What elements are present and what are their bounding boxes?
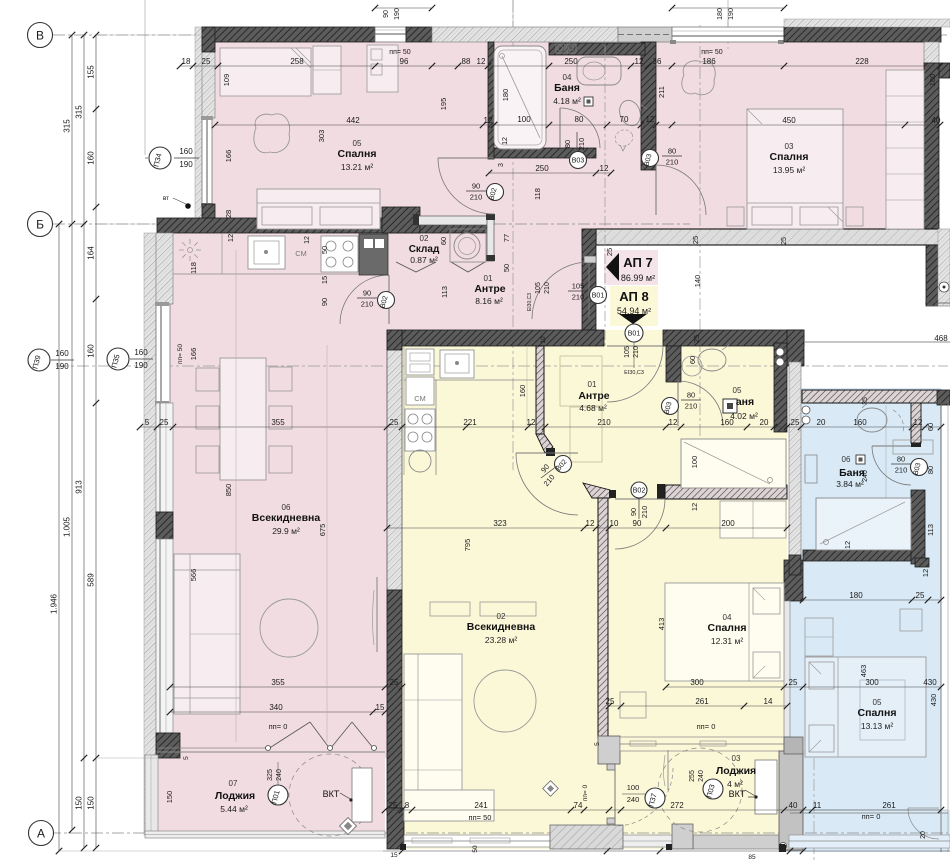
svg-text:80: 80 [668, 147, 676, 156]
svg-text:566: 566 [189, 569, 198, 582]
svg-text:5.44 м²: 5.44 м² [220, 804, 248, 814]
svg-text:463: 463 [859, 665, 868, 678]
svg-text:413: 413 [657, 618, 666, 631]
svg-text:589: 589 [87, 573, 96, 587]
svg-text:10: 10 [540, 336, 547, 344]
svg-text:12: 12 [226, 234, 235, 242]
svg-text:315: 315 [63, 119, 72, 133]
svg-text:10: 10 [610, 519, 619, 528]
svg-text:211: 211 [657, 86, 666, 98]
svg-text:пп= 50: пп= 50 [469, 813, 492, 822]
svg-text:150: 150 [87, 796, 96, 810]
svg-text:12: 12 [586, 519, 595, 528]
svg-text:25: 25 [862, 397, 869, 405]
svg-text:12.31 м²: 12.31 м² [711, 636, 743, 646]
svg-text:20: 20 [817, 418, 826, 427]
svg-text:ВКТ: ВКТ [323, 789, 340, 799]
svg-text:11: 11 [813, 801, 822, 810]
svg-text:210: 210 [577, 138, 586, 151]
svg-text:100: 100 [517, 115, 531, 124]
svg-text:25: 25 [606, 697, 615, 706]
svg-text:пп= 0: пп= 0 [862, 812, 881, 821]
svg-text:0.87 м²: 0.87 м² [410, 255, 438, 265]
svg-text:210: 210 [544, 282, 551, 294]
svg-text:15: 15 [390, 852, 398, 859]
svg-text:3.84 м²: 3.84 м² [836, 479, 864, 489]
svg-text:166: 166 [224, 150, 233, 163]
svg-text:190: 190 [134, 361, 148, 370]
svg-text:ВКТ: ВКТ [729, 789, 746, 799]
svg-text:02: 02 [420, 234, 429, 243]
svg-text:4.18 м²: 4.18 м² [553, 96, 581, 106]
svg-text:EI30,C3: EI30,C3 [527, 293, 533, 311]
svg-text:АП 7: АП 7 [623, 255, 652, 270]
svg-text:25: 25 [789, 678, 798, 687]
svg-text:90: 90 [320, 298, 329, 306]
svg-text:300: 300 [865, 678, 879, 687]
svg-text:160: 160 [87, 344, 96, 358]
svg-text:12: 12 [843, 541, 852, 549]
svg-text:430: 430 [929, 694, 938, 707]
svg-text:36: 36 [653, 57, 662, 66]
svg-text:Склад: Склад [409, 244, 440, 255]
svg-text:195: 195 [439, 98, 448, 111]
svg-text:240: 240 [862, 470, 869, 482]
svg-text:210: 210 [640, 506, 649, 519]
svg-text:04: 04 [563, 73, 572, 82]
svg-text:109: 109 [222, 74, 231, 87]
svg-text:12: 12 [484, 116, 493, 125]
svg-text:Всекидневна: Всекидневна [252, 512, 321, 524]
svg-text:100: 100 [690, 456, 699, 469]
svg-text:05: 05 [873, 698, 882, 707]
svg-text:88: 88 [462, 57, 471, 66]
svg-text:12: 12 [527, 418, 536, 427]
svg-text:05: 05 [733, 386, 742, 395]
svg-text:40: 40 [789, 801, 798, 810]
svg-text:60: 60 [688, 356, 697, 364]
svg-text:07: 07 [229, 779, 238, 788]
svg-text:160: 160 [55, 349, 69, 358]
svg-text:СМ: СМ [414, 394, 426, 403]
svg-text:140: 140 [693, 275, 702, 288]
svg-text:118: 118 [189, 262, 198, 274]
svg-text:155: 155 [87, 65, 96, 79]
svg-text:190: 190 [394, 8, 401, 20]
svg-text:12: 12 [914, 418, 923, 427]
svg-text:25: 25 [389, 801, 398, 810]
svg-text:355: 355 [271, 678, 285, 687]
svg-text:118: 118 [533, 188, 542, 200]
svg-text:850: 850 [224, 484, 233, 497]
svg-text:01: 01 [484, 274, 493, 283]
svg-text:60: 60 [926, 423, 935, 431]
svg-text:200: 200 [721, 519, 735, 528]
svg-text:50: 50 [472, 845, 479, 853]
svg-text:25: 25 [692, 335, 701, 343]
svg-text:210: 210 [572, 293, 585, 302]
svg-text:913: 913 [75, 480, 84, 494]
svg-text:02: 02 [497, 612, 506, 621]
svg-text:4 м²: 4 м² [727, 779, 743, 789]
svg-text:пп= 50: пп= 50 [177, 344, 184, 364]
svg-text:90: 90 [472, 182, 480, 191]
svg-text:25: 25 [390, 678, 399, 687]
svg-text:5: 5 [145, 418, 150, 427]
svg-text:вт: вт [163, 195, 169, 202]
svg-text:166: 166 [189, 348, 198, 361]
svg-text:В: В [36, 28, 44, 42]
svg-text:210: 210 [895, 466, 908, 475]
svg-text:272: 272 [670, 801, 684, 810]
svg-text:255: 255 [689, 770, 696, 782]
svg-text:20: 20 [920, 831, 927, 839]
svg-text:190: 190 [55, 362, 69, 371]
svg-text:Всекидневна: Всекидневна [467, 621, 536, 633]
svg-text:261: 261 [882, 801, 896, 810]
svg-text:5: 5 [594, 742, 601, 746]
svg-text:468: 468 [934, 334, 948, 343]
svg-text:12: 12 [669, 418, 678, 427]
svg-text:180: 180 [501, 89, 510, 102]
svg-text:12: 12 [502, 137, 509, 145]
svg-text:В03: В03 [572, 158, 585, 165]
svg-text:86.99 м²: 86.99 м² [621, 273, 655, 283]
svg-text:795: 795 [463, 539, 472, 552]
svg-text:325: 325 [267, 769, 274, 781]
svg-text:1.946: 1.946 [50, 593, 59, 614]
svg-text:90: 90 [633, 519, 642, 528]
svg-text:221: 221 [463, 418, 477, 427]
svg-text:60: 60 [439, 237, 448, 245]
svg-text:25: 25 [691, 236, 700, 244]
svg-text:85: 85 [748, 854, 756, 861]
svg-text:250: 250 [564, 57, 578, 66]
svg-text:06: 06 [282, 503, 291, 512]
svg-text:100: 100 [627, 783, 640, 792]
svg-text:164: 164 [87, 246, 96, 260]
svg-text:1.005: 1.005 [63, 516, 72, 537]
svg-text:240: 240 [627, 795, 640, 804]
svg-text:105: 105 [572, 282, 585, 291]
svg-text:258: 258 [290, 57, 304, 66]
svg-text:300: 300 [690, 678, 704, 687]
svg-text:210: 210 [470, 193, 483, 202]
svg-text:12: 12 [921, 569, 930, 577]
svg-text:АП 8: АП 8 [619, 289, 648, 304]
svg-text:323: 323 [493, 519, 507, 528]
svg-text:180: 180 [928, 74, 937, 87]
svg-text:50: 50 [320, 246, 329, 254]
svg-text:06: 06 [842, 455, 851, 464]
svg-text:01: 01 [588, 380, 597, 389]
svg-text:пп= 50: пп= 50 [389, 49, 411, 56]
svg-text:190: 190 [728, 8, 735, 20]
svg-text:28: 28 [224, 210, 233, 218]
svg-text:13.95 м²: 13.95 м² [773, 165, 805, 175]
svg-text:80: 80 [897, 455, 905, 464]
svg-text:EI30,C3: EI30,C3 [624, 370, 644, 376]
svg-text:8.16 м²: 8.16 м² [475, 296, 503, 306]
svg-text:пп= 0: пп= 0 [697, 722, 716, 731]
svg-text:8: 8 [405, 801, 410, 810]
svg-text:250: 250 [535, 164, 549, 173]
svg-text:25: 25 [916, 591, 925, 600]
svg-text:Спалня: Спалня [708, 622, 747, 634]
svg-text:186: 186 [702, 57, 716, 66]
svg-text:113: 113 [926, 524, 935, 536]
svg-text:77: 77 [502, 234, 511, 242]
svg-text:СМ: СМ [295, 249, 307, 258]
svg-text:Спалня: Спалня [338, 148, 377, 160]
svg-text:В02: В02 [633, 488, 646, 495]
svg-text:80: 80 [926, 466, 935, 474]
svg-text:430: 430 [923, 678, 937, 687]
svg-text:Баня: Баня [554, 82, 580, 94]
svg-text:240: 240 [276, 769, 283, 781]
svg-text:80: 80 [687, 391, 695, 400]
svg-text:Антре: Антре [474, 283, 505, 295]
svg-text:442: 442 [346, 116, 360, 125]
svg-text:40: 40 [932, 116, 941, 125]
svg-text:25: 25 [791, 418, 800, 427]
svg-text:160: 160 [518, 385, 527, 398]
svg-text:25: 25 [390, 418, 399, 427]
svg-text:150: 150 [75, 796, 84, 810]
svg-text:12: 12 [646, 115, 655, 124]
svg-text:03: 03 [785, 142, 794, 151]
svg-text:340: 340 [269, 703, 283, 712]
svg-text:80: 80 [563, 140, 572, 148]
svg-text:90: 90 [629, 508, 638, 516]
svg-text:12: 12 [304, 236, 311, 244]
svg-text:210: 210 [633, 346, 640, 358]
svg-text:315: 315 [75, 105, 84, 119]
svg-text:12: 12 [477, 57, 486, 66]
svg-text:210: 210 [597, 418, 611, 427]
svg-text:05: 05 [353, 139, 362, 148]
svg-text:70: 70 [620, 115, 629, 124]
svg-text:20: 20 [760, 418, 769, 427]
svg-text:74: 74 [574, 801, 583, 810]
svg-text:261: 261 [695, 697, 709, 706]
svg-text:15: 15 [320, 276, 329, 284]
svg-text:105: 105 [535, 282, 542, 294]
svg-text:Антре: Антре [578, 390, 609, 402]
svg-text:210: 210 [666, 158, 679, 167]
svg-text:105: 105 [624, 346, 631, 358]
svg-text:4.68 м²: 4.68 м² [579, 403, 607, 413]
svg-text:В01: В01 [592, 293, 605, 300]
svg-text:Лоджия: Лоджия [215, 790, 255, 802]
svg-text:90: 90 [383, 10, 390, 18]
svg-text:А: А [37, 826, 45, 840]
svg-text:5: 5 [183, 756, 190, 760]
svg-text:50: 50 [502, 264, 511, 272]
svg-text:150: 150 [165, 791, 174, 804]
svg-text:Лоджия: Лоджия [716, 765, 756, 777]
svg-text:пп= 0: пп= 0 [269, 722, 288, 731]
svg-text:пп= 0: пп= 0 [582, 784, 589, 801]
svg-text:80: 80 [575, 115, 584, 124]
svg-text:210: 210 [685, 402, 698, 411]
svg-text:96: 96 [400, 57, 409, 66]
svg-text:160: 160 [720, 418, 734, 427]
svg-text:14: 14 [764, 697, 773, 706]
svg-text:90: 90 [363, 289, 371, 298]
svg-text:23.28 м²: 23.28 м² [485, 635, 517, 645]
svg-text:160: 160 [853, 418, 867, 427]
svg-text:675: 675 [318, 524, 327, 537]
svg-text:13.13 м²: 13.13 м² [861, 721, 893, 731]
svg-text:160: 160 [179, 147, 193, 156]
svg-text:450: 450 [782, 116, 796, 125]
svg-text:пп= 50: пп= 50 [701, 49, 723, 56]
svg-text:180: 180 [717, 8, 724, 20]
svg-text:12: 12 [690, 503, 699, 511]
svg-text:4.02 м²: 4.02 м² [730, 411, 758, 421]
svg-text:Б: Б [36, 217, 44, 231]
svg-text:355: 355 [271, 418, 285, 427]
svg-text:аня: аня [736, 396, 754, 408]
svg-text:03: 03 [732, 754, 741, 763]
svg-text:25: 25 [605, 248, 614, 256]
svg-text:25: 25 [202, 57, 211, 66]
svg-text:113: 113 [440, 286, 449, 298]
svg-text:25: 25 [160, 418, 169, 427]
svg-text:240: 240 [698, 770, 705, 782]
svg-text:12: 12 [635, 57, 644, 66]
svg-text:180: 180 [849, 591, 863, 600]
svg-text:3: 3 [498, 163, 505, 167]
svg-text:12: 12 [600, 164, 609, 173]
svg-text:15: 15 [376, 703, 385, 712]
svg-text:В01: В01 [628, 331, 641, 338]
svg-text:13.21 м²: 13.21 м² [341, 162, 373, 172]
svg-text:303: 303 [317, 130, 326, 143]
svg-text:210: 210 [361, 300, 374, 309]
svg-text:Спалня: Спалня [858, 707, 897, 719]
svg-text:190: 190 [179, 160, 193, 169]
svg-text:160: 160 [87, 151, 96, 165]
svg-text:160: 160 [134, 348, 148, 357]
svg-text:25: 25 [781, 237, 788, 245]
svg-text:18: 18 [182, 57, 191, 66]
svg-text:29.9 м²: 29.9 м² [272, 526, 300, 536]
svg-text:228: 228 [855, 57, 869, 66]
svg-text:241: 241 [474, 801, 488, 810]
svg-text:04: 04 [723, 613, 732, 622]
svg-text:Спалня: Спалня [770, 151, 809, 163]
